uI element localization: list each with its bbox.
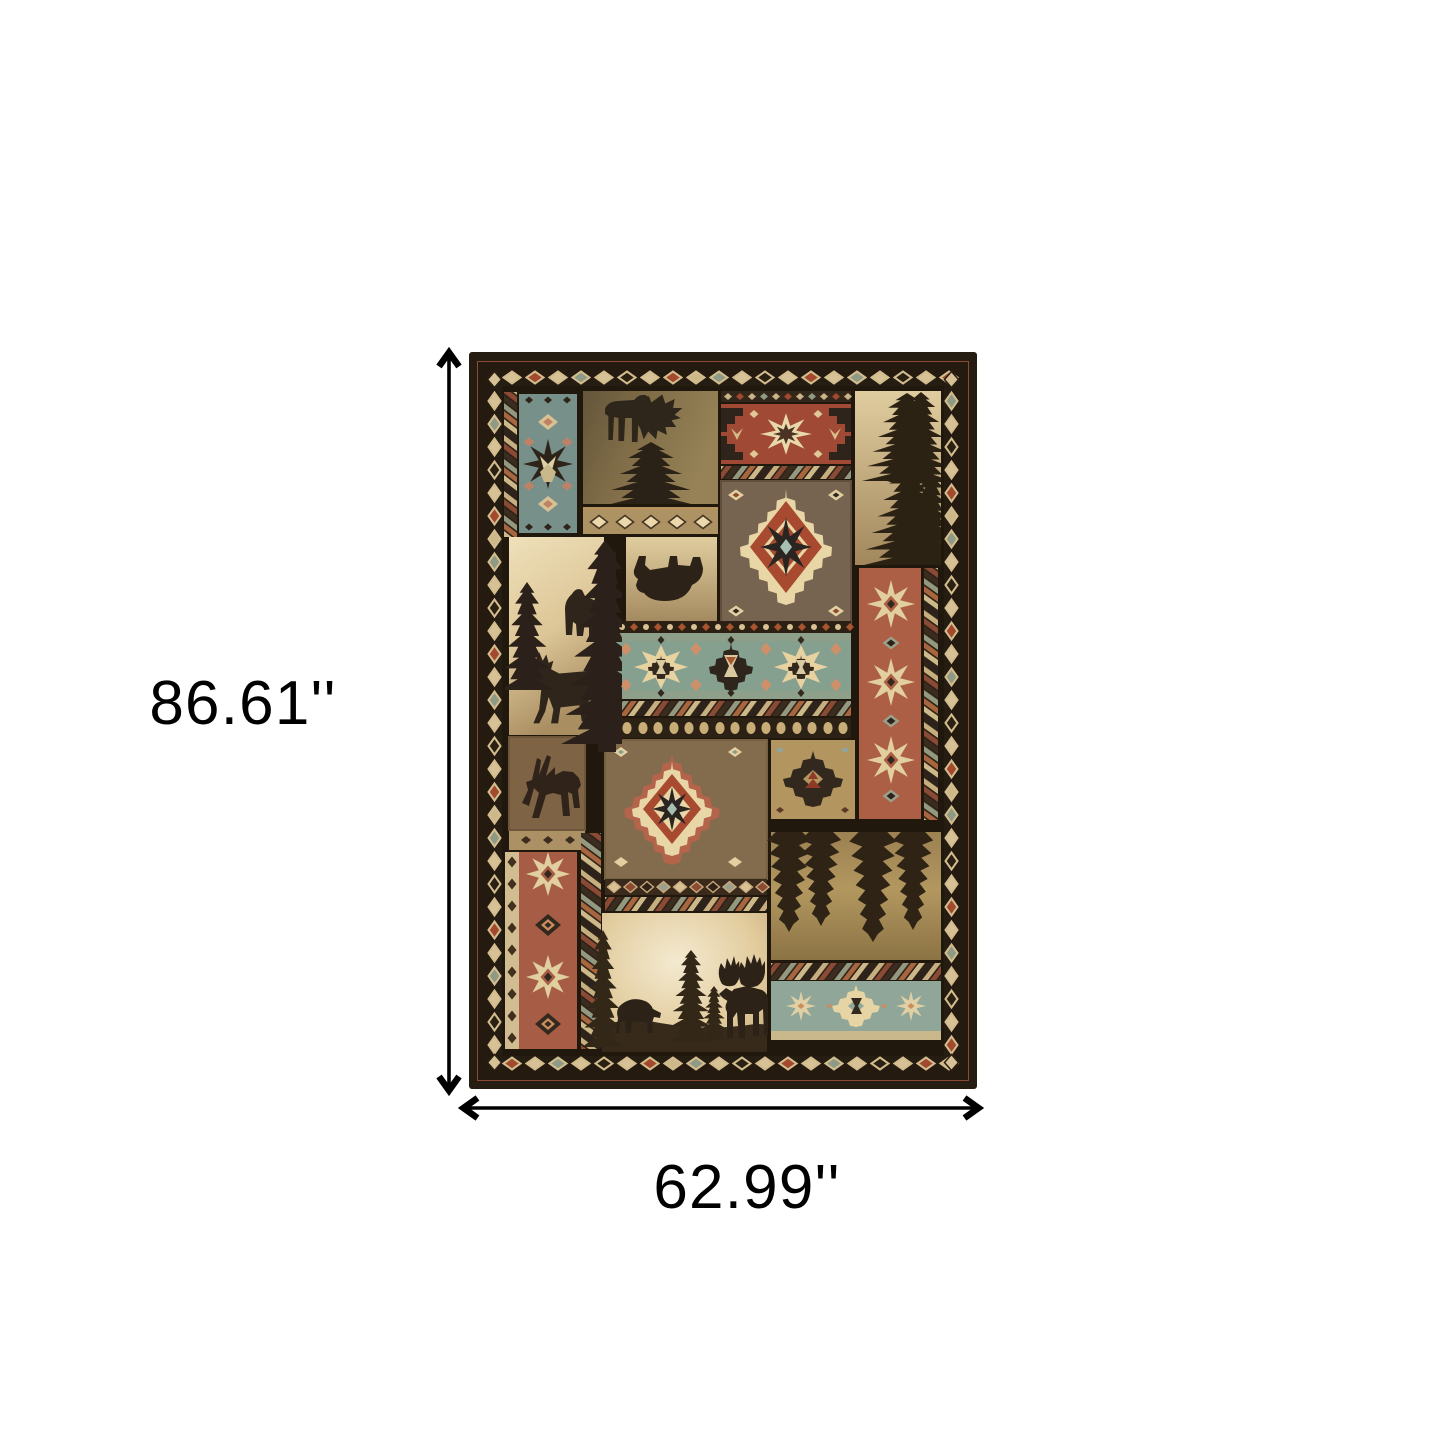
svg-text:62.99'': 62.99'' xyxy=(653,1153,840,1222)
svg-text:86.61'': 86.61'' xyxy=(149,669,336,738)
